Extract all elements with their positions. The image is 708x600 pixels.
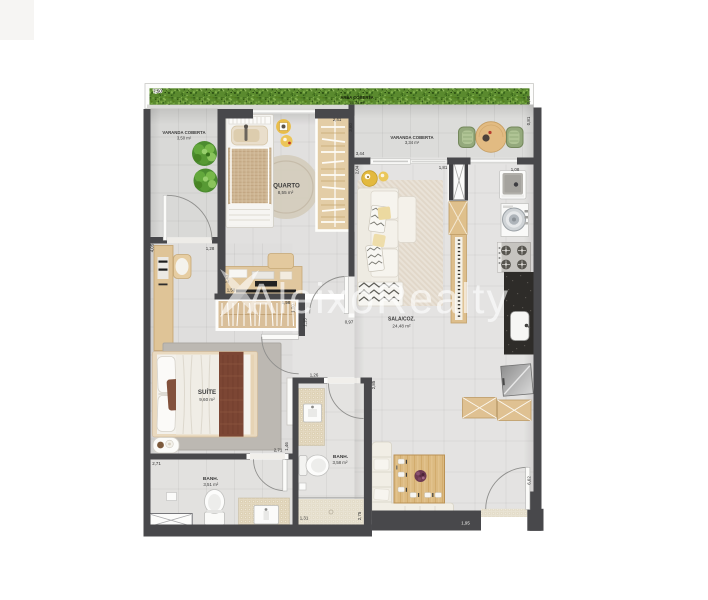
- svg-text:3,50 m²: 3,50 m²: [177, 136, 192, 141]
- svg-text:8,55 m²: 8,55 m²: [278, 190, 294, 195]
- svg-text:9,60 m²: 9,60 m²: [199, 397, 215, 402]
- svg-text:1,26: 1,26: [310, 373, 319, 378]
- svg-text:2,41: 2,41: [333, 117, 342, 122]
- svg-text:7,50: 7,50: [153, 89, 162, 94]
- svg-text:3,34 m²: 3,34 m²: [405, 140, 420, 145]
- svg-text:24,48 m²: 24,48 m²: [392, 323, 411, 328]
- svg-text:2,71: 2,71: [274, 448, 283, 453]
- svg-text:SUÍTE: SUÍTE: [198, 388, 216, 396]
- svg-text:1,28: 1,28: [206, 246, 215, 251]
- svg-text:1,46: 1,46: [284, 442, 289, 451]
- svg-text:6,62: 6,62: [527, 476, 532, 485]
- svg-text:AleixoRealty: AleixoRealty: [247, 275, 510, 323]
- svg-text:1,95: 1,95: [461, 521, 470, 526]
- svg-text:3,51 m²: 3,51 m²: [203, 482, 218, 487]
- svg-text:3,58 m²: 3,58 m²: [333, 460, 348, 465]
- svg-text:0,81: 0,81: [526, 116, 531, 125]
- svg-text:0,90: 0,90: [526, 95, 531, 104]
- svg-text:2,04: 2,04: [355, 165, 360, 174]
- svg-text:1,08: 1,08: [511, 167, 520, 172]
- svg-text:3,44: 3,44: [356, 151, 365, 156]
- svg-text:VARANDA COBERTA: VARANDA COBERTA: [162, 130, 205, 135]
- svg-text:2,75: 2,75: [357, 511, 362, 520]
- svg-text:15,74 m²: 15,74 m²: [349, 100, 365, 105]
- svg-text:1,81: 1,81: [439, 165, 448, 170]
- svg-text:4,05: 4,05: [150, 243, 155, 252]
- svg-text:QUARTO: QUARTO: [273, 183, 300, 190]
- svg-text:2,71: 2,71: [152, 461, 161, 466]
- svg-text:2,85: 2,85: [371, 380, 376, 389]
- svg-text:3,60: 3,60: [348, 123, 353, 132]
- svg-text:1,31: 1,31: [300, 516, 309, 521]
